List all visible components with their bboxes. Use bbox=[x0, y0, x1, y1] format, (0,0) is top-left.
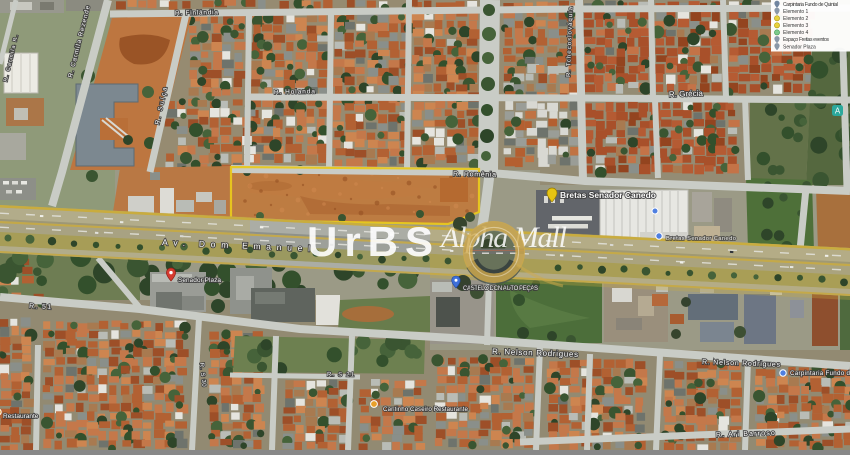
svg-text:R. 51: R. 51 bbox=[29, 303, 51, 311]
svg-text:R. Grécia: R. Grécia bbox=[669, 89, 704, 99]
svg-text:Elemento 4: Elemento 4 bbox=[783, 30, 809, 36]
svg-text:Elemento 3: Elemento 3 bbox=[783, 23, 809, 29]
svg-text:Senador Plaza: Senador Plaza bbox=[178, 277, 221, 284]
svg-text:Cantinho Caseiro Restaurante: Cantinho Caseiro Restaurante bbox=[383, 406, 468, 413]
svg-text:CASTELO DON AUTO PEÇAS: CASTELO DON AUTO PEÇAS bbox=[463, 286, 538, 292]
svg-text:Senador Plaza: Senador Plaza bbox=[783, 44, 816, 50]
svg-text:R. Romênia: R. Romênia bbox=[453, 171, 496, 179]
svg-text:Restaurante: Restaurante bbox=[3, 413, 39, 420]
svg-text:Elemento 2: Elemento 2 bbox=[783, 16, 809, 22]
svg-text:Bretas Senador Canedo: Bretas Senador Canedo bbox=[666, 236, 736, 242]
svg-text:Elemento 1: Elemento 1 bbox=[783, 9, 809, 15]
svg-text:Espaço Freitas eventos: Espaço Freitas eventos bbox=[783, 37, 830, 43]
svg-text:R. Finlândia: R. Finlândia bbox=[175, 9, 218, 17]
svg-text:Carpintaria Fundo d: Carpintaria Fundo d bbox=[790, 370, 850, 377]
svg-text:R. Holanda: R. Holanda bbox=[274, 88, 315, 96]
svg-text:Bretas Senador Canedo: Bretas Senador Canedo bbox=[560, 190, 656, 200]
svg-text:A: A bbox=[835, 107, 841, 116]
svg-text:R. S 21: R. S 21 bbox=[327, 372, 355, 378]
svg-text:UrBS: UrBS bbox=[307, 218, 440, 265]
svg-text:Carpintaria Fundo de Quintal: Carpintaria Fundo de Quintal bbox=[783, 2, 838, 8]
